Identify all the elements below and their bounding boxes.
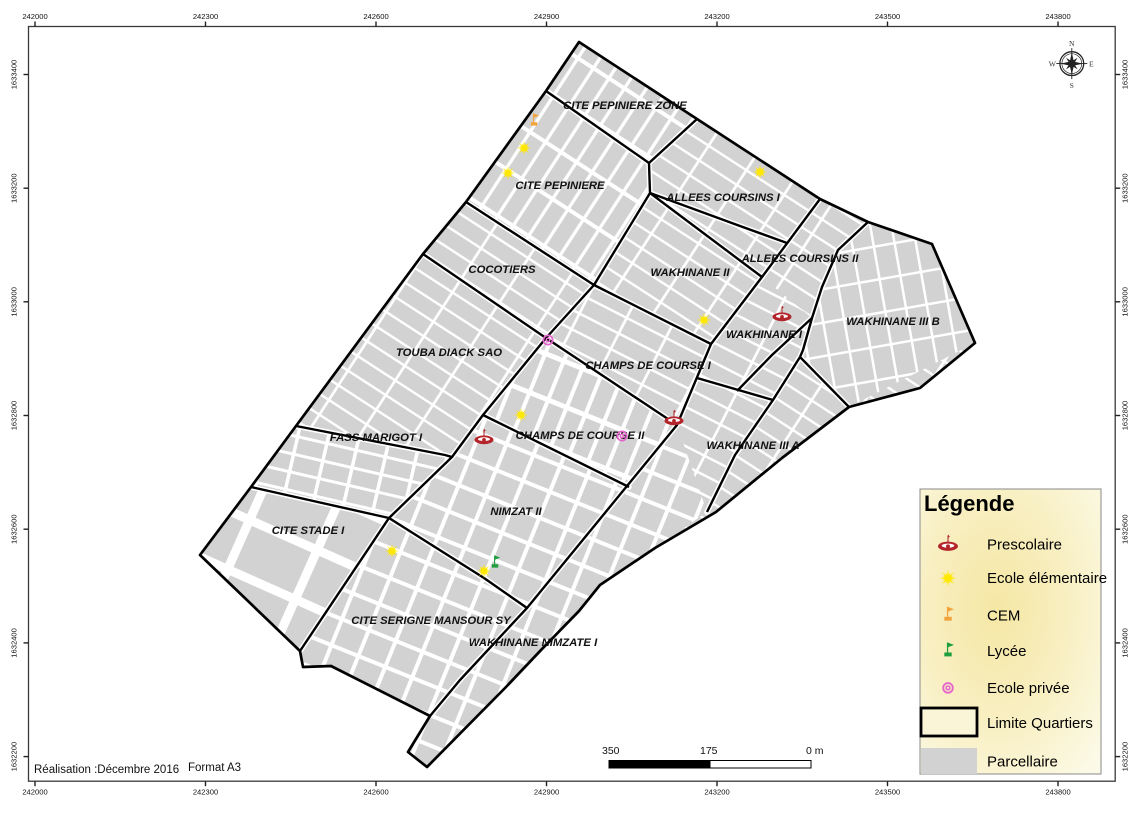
svg-text:WAKHINANE I: WAKHINANE I [726, 329, 803, 341]
svg-text:WAKHINANE III A: WAKHINANE III A [706, 440, 799, 452]
svg-text:W: W [1049, 60, 1057, 69]
svg-text:Légende: Légende [924, 491, 1014, 516]
svg-text:243500: 243500 [875, 12, 900, 21]
svg-text:Réalisation :Décembre 2016: Réalisation :Décembre 2016 [34, 764, 179, 776]
svg-text:1633400: 1633400 [1121, 60, 1130, 90]
svg-text:243800: 243800 [1045, 788, 1070, 797]
svg-text:175: 175 [700, 745, 718, 757]
svg-text:1632200: 1632200 [10, 742, 19, 772]
svg-text:FASS MARIGOT I: FASS MARIGOT I [330, 432, 423, 444]
svg-text:1632600: 1632600 [10, 514, 19, 544]
svg-text:1633200: 1633200 [1121, 173, 1130, 203]
svg-text:242600: 242600 [363, 788, 388, 797]
svg-text:Format A3: Format A3 [188, 762, 241, 774]
svg-text:S: S [1070, 81, 1074, 90]
svg-text:1632800: 1632800 [10, 401, 19, 431]
svg-text:Lycée: Lycée [987, 643, 1026, 660]
svg-text:1632400: 1632400 [10, 628, 19, 658]
svg-text:350: 350 [602, 745, 620, 757]
svg-text:Prescolaire: Prescolaire [987, 536, 1062, 553]
svg-text:1633000: 1633000 [1121, 287, 1130, 317]
svg-text:243200: 243200 [704, 788, 729, 797]
svg-text:ALLEES COURSINS II: ALLEES COURSINS II [741, 253, 860, 265]
svg-text:1632200: 1632200 [1121, 742, 1130, 772]
svg-text:242300: 242300 [193, 788, 218, 797]
svg-text:243500: 243500 [875, 788, 900, 797]
svg-text:WAKHINANE III B: WAKHINANE III B [846, 316, 940, 328]
svg-text:TOUBA DIACK SAO: TOUBA DIACK SAO [396, 347, 502, 359]
svg-text:CITE PEPINIERE ZONE: CITE PEPINIERE ZONE [563, 100, 687, 112]
svg-text:NIMZAT II: NIMZAT II [490, 506, 542, 518]
svg-text:1632800: 1632800 [1121, 401, 1130, 431]
svg-text:ALLEES COURSINS I: ALLEES COURSINS I [665, 192, 780, 204]
svg-text:0 m: 0 m [806, 745, 824, 757]
svg-text:CITE STADE I: CITE STADE I [272, 525, 345, 537]
svg-text:242000: 242000 [22, 12, 47, 21]
svg-text:1633200: 1633200 [10, 173, 19, 203]
svg-text:1632400: 1632400 [1121, 628, 1130, 658]
svg-text:Parcellaire: Parcellaire [987, 754, 1058, 771]
svg-text:CHAMPS DE COURSE I: CHAMPS DE COURSE I [585, 360, 711, 372]
svg-text:COCOTIERS: COCOTIERS [468, 264, 536, 276]
svg-text:242900: 242900 [534, 12, 559, 21]
svg-text:Limite Quartiers: Limite Quartiers [987, 715, 1093, 732]
svg-text:E: E [1089, 60, 1094, 69]
svg-text:1632600: 1632600 [1121, 514, 1130, 544]
svg-text:242300: 242300 [193, 12, 218, 21]
svg-text:CITE SERIGNE MANSOUR SY: CITE SERIGNE MANSOUR SY [351, 615, 512, 627]
svg-text:1633000: 1633000 [10, 287, 19, 317]
svg-text:CEM: CEM [987, 607, 1020, 624]
svg-text:N: N [1069, 39, 1075, 48]
svg-text:WAKHINANE II: WAKHINANE II [650, 267, 730, 279]
svg-text:242000: 242000 [22, 788, 47, 797]
svg-text:1633400: 1633400 [10, 60, 19, 90]
svg-text:WAKHINANE NIMZATE I: WAKHINANE NIMZATE I [469, 637, 598, 649]
svg-text:242600: 242600 [363, 12, 388, 21]
svg-text:CITE PEPINIERE: CITE PEPINIERE [515, 180, 605, 192]
svg-text:Ecole privée: Ecole privée [987, 680, 1070, 697]
svg-text:Ecole élémentaire: Ecole élémentaire [987, 570, 1107, 587]
svg-text:243800: 243800 [1045, 12, 1070, 21]
svg-text:243200: 243200 [704, 12, 729, 21]
svg-text:242900: 242900 [534, 788, 559, 797]
